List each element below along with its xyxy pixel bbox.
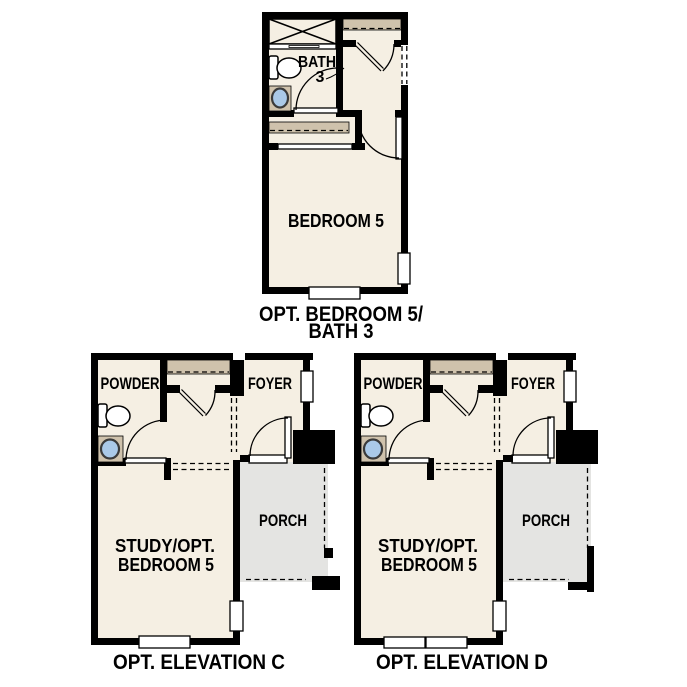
window-symbol [139, 636, 190, 648]
floorplan-sheet: { "colors": { "paper": "#ffffff", "ink":… [0, 0, 687, 687]
room-label-porch: PORCH [259, 511, 307, 530]
toilet-symbol [269, 56, 301, 79]
room-label-study-line1: STUDY/OPT. [115, 536, 215, 556]
room-label-porch: PORCH [522, 511, 570, 530]
closet-shelf [269, 122, 349, 133]
porch-post [324, 548, 333, 558]
room-label-study-line2: BEDROOM 5 [381, 555, 477, 575]
plan-caption: OPT. ELEVATION C [113, 651, 285, 674]
floorplan-canvas: BATH 3 BEDROOM 5 OPT. BEDROOM 5/ BATH 3 [0, 0, 687, 687]
room-label-powder: POWDER [101, 374, 160, 393]
plan-caption: OPT. ELEVATION D [376, 651, 548, 674]
plan-caption-line2: BATH 3 [309, 320, 374, 343]
room-label-foyer: FOYER [248, 374, 292, 393]
room-label-study-line2: BEDROOM 5 [118, 555, 214, 575]
room-label-foyer: FOYER [511, 374, 555, 393]
window-symbol [384, 637, 425, 648]
closet-opening [278, 144, 352, 149]
window-symbol [398, 253, 410, 284]
porch-corner-block [568, 582, 594, 590]
toilet-symbol [98, 404, 130, 427]
window-symbol [301, 371, 313, 402]
plan-opt-elevation-d-structure [354, 353, 598, 645]
window-symbol [426, 637, 467, 648]
room-label-study-line1: STUDY/OPT. [378, 536, 478, 556]
window-symbol [493, 601, 506, 631]
window-symbol [309, 287, 360, 299]
window-symbol [230, 601, 243, 631]
porch-corner-block [312, 576, 340, 590]
room-label-bath-number: 3 [316, 69, 325, 86]
room-label-bedroom5: BEDROOM 5 [288, 211, 384, 231]
sink-symbol [98, 436, 123, 462]
room-label-powder: POWDER [364, 374, 423, 393]
entry-threshold [249, 455, 287, 463]
sink-symbol [269, 86, 291, 111]
plan-opt-bedroom5-bath3: BATH 3 BEDROOM 5 OPT. BEDROOM 5/ BATH 3 [259, 12, 423, 343]
plan-structure-base [91, 353, 335, 645]
